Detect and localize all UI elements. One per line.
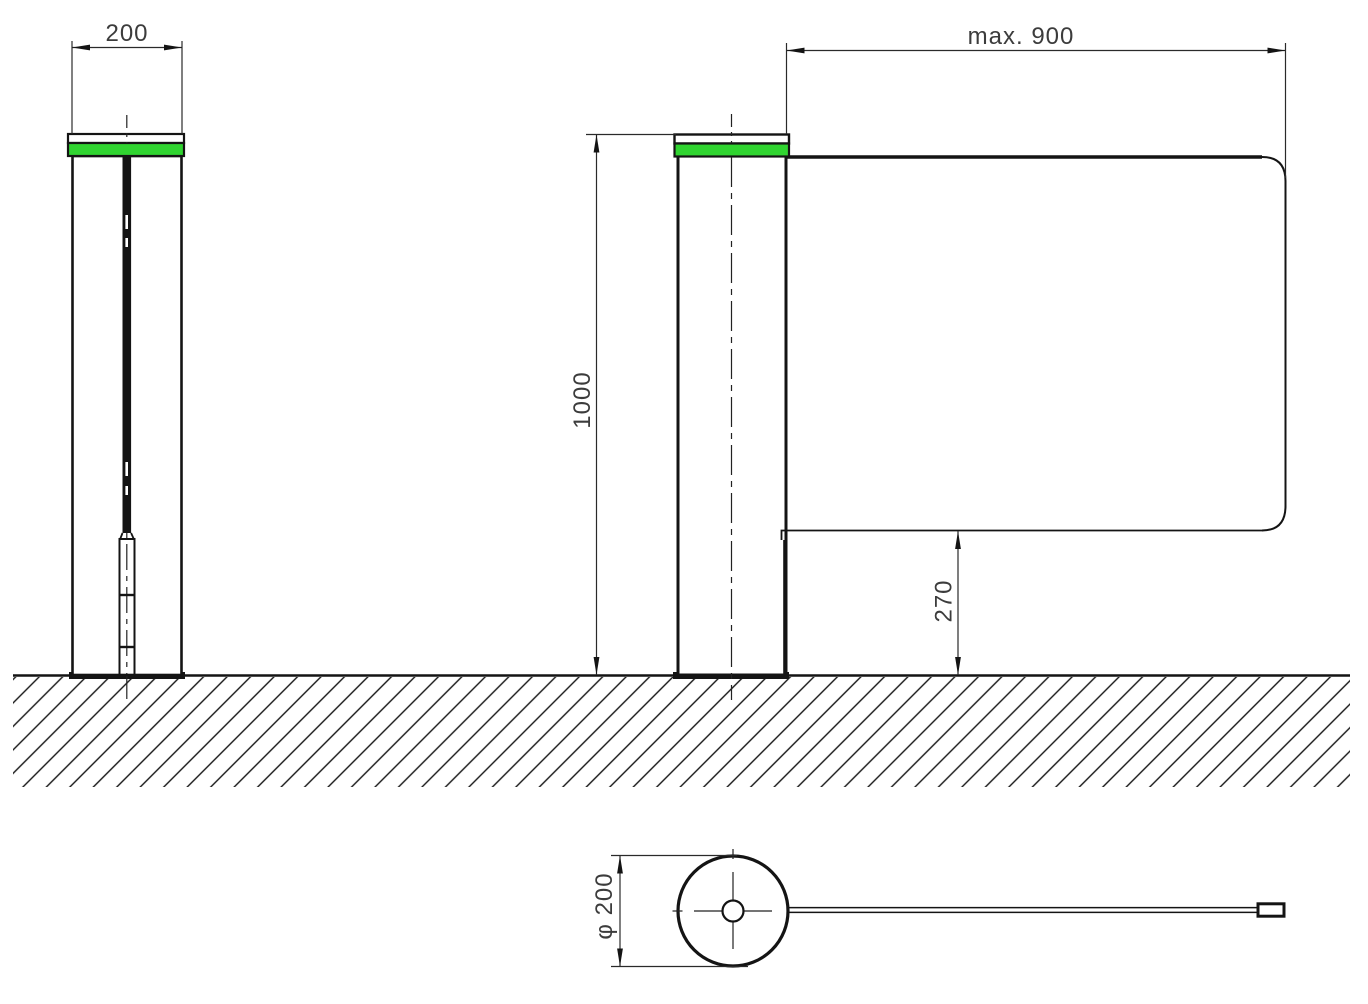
dim-wing-length: max. 900 bbox=[968, 23, 1075, 50]
pivot-hub-plan bbox=[723, 901, 744, 922]
technical-drawing-page: 200 max. 900 1000 bbox=[0, 0, 1368, 1004]
arrowhead-right bbox=[164, 45, 182, 51]
wing-edge-side bbox=[123, 157, 132, 533]
floor-hatching bbox=[13, 677, 1350, 787]
wing-edge-centerline-gap bbox=[125, 486, 128, 495]
arrowhead-bottom bbox=[594, 657, 600, 675]
arrowhead-bottom bbox=[617, 949, 623, 967]
arrowhead-top bbox=[617, 856, 623, 874]
indicator-light-band-side bbox=[68, 143, 184, 156]
gate-wing-fill bbox=[786, 157, 1286, 531]
front-view: max. 900 1000 270 bbox=[569, 23, 1286, 700]
side-view: 200 bbox=[68, 20, 184, 699]
plan-view: φ 200 bbox=[591, 849, 1284, 967]
arrowhead-left bbox=[72, 45, 90, 51]
indicator-light-band-front bbox=[675, 144, 790, 157]
dimension-post-height: 1000 bbox=[569, 135, 676, 676]
arrowhead-right bbox=[1268, 48, 1286, 54]
post-cap-side bbox=[68, 134, 184, 143]
dim-post-height: 1000 bbox=[569, 371, 596, 428]
dim-wing-clearance: 270 bbox=[931, 579, 958, 622]
technical-drawing-canvas: 200 max. 900 1000 bbox=[0, 0, 1368, 1004]
arrowhead-top bbox=[955, 531, 961, 549]
wing-edge-centerline-gap bbox=[125, 238, 128, 247]
dimension-wing-length: max. 900 bbox=[787, 23, 1286, 178]
ground bbox=[13, 676, 1350, 788]
dim-post-width: 200 bbox=[105, 20, 148, 47]
dimension-wing-clearance: 270 bbox=[931, 531, 961, 675]
dim-post-diameter: φ 200 bbox=[591, 872, 618, 939]
arrowhead-top bbox=[594, 135, 600, 153]
arrowhead-bottom bbox=[955, 657, 961, 675]
wing-edge-centerline-gap bbox=[125, 215, 128, 229]
wing-edge-centerline-gap bbox=[125, 462, 128, 476]
wing-arm-end-cap bbox=[1258, 904, 1284, 916]
arrowhead-left bbox=[787, 48, 805, 54]
